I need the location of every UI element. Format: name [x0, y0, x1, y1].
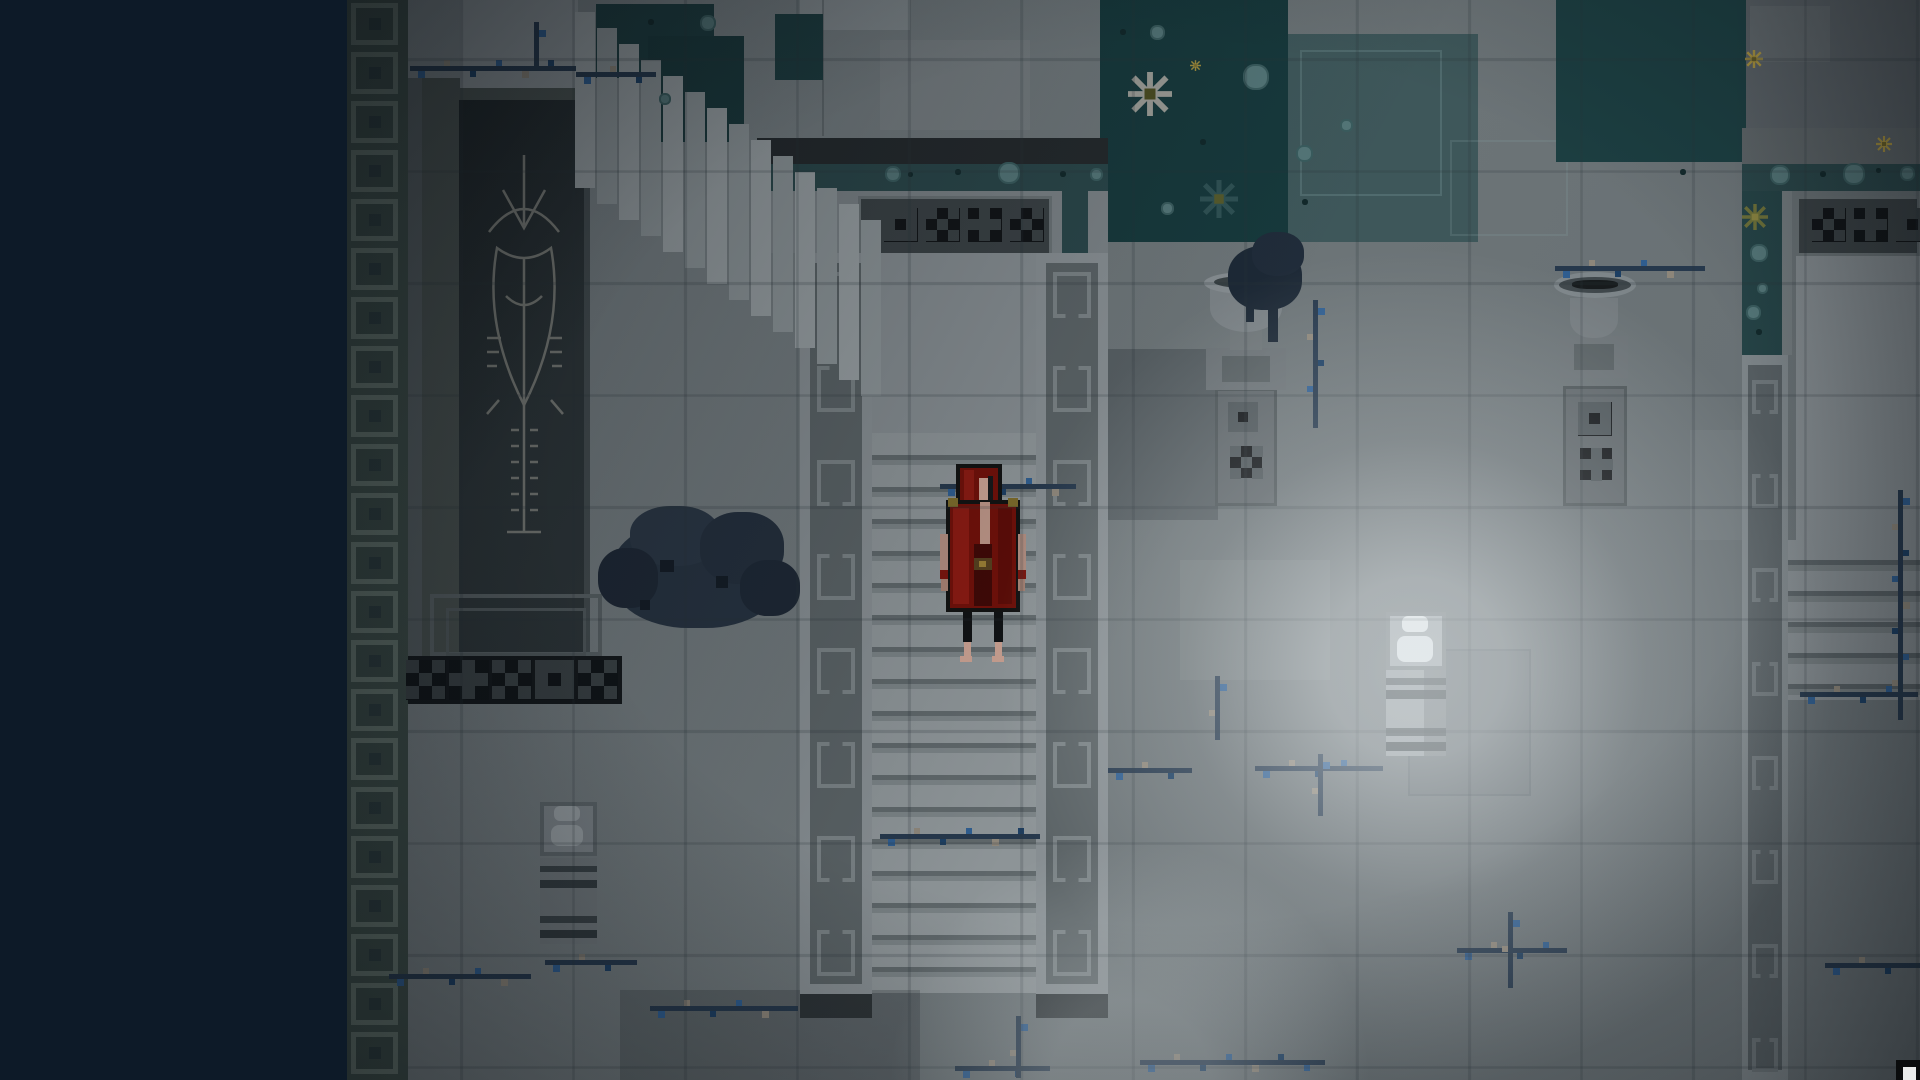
corner-cursor — [1903, 1067, 1916, 1080]
left-letterbox — [0, 0, 347, 1080]
game-window — [0, 0, 1920, 1080]
vignette — [347, 0, 1920, 1080]
game-viewport[interactable] — [0, 0, 1920, 1080]
